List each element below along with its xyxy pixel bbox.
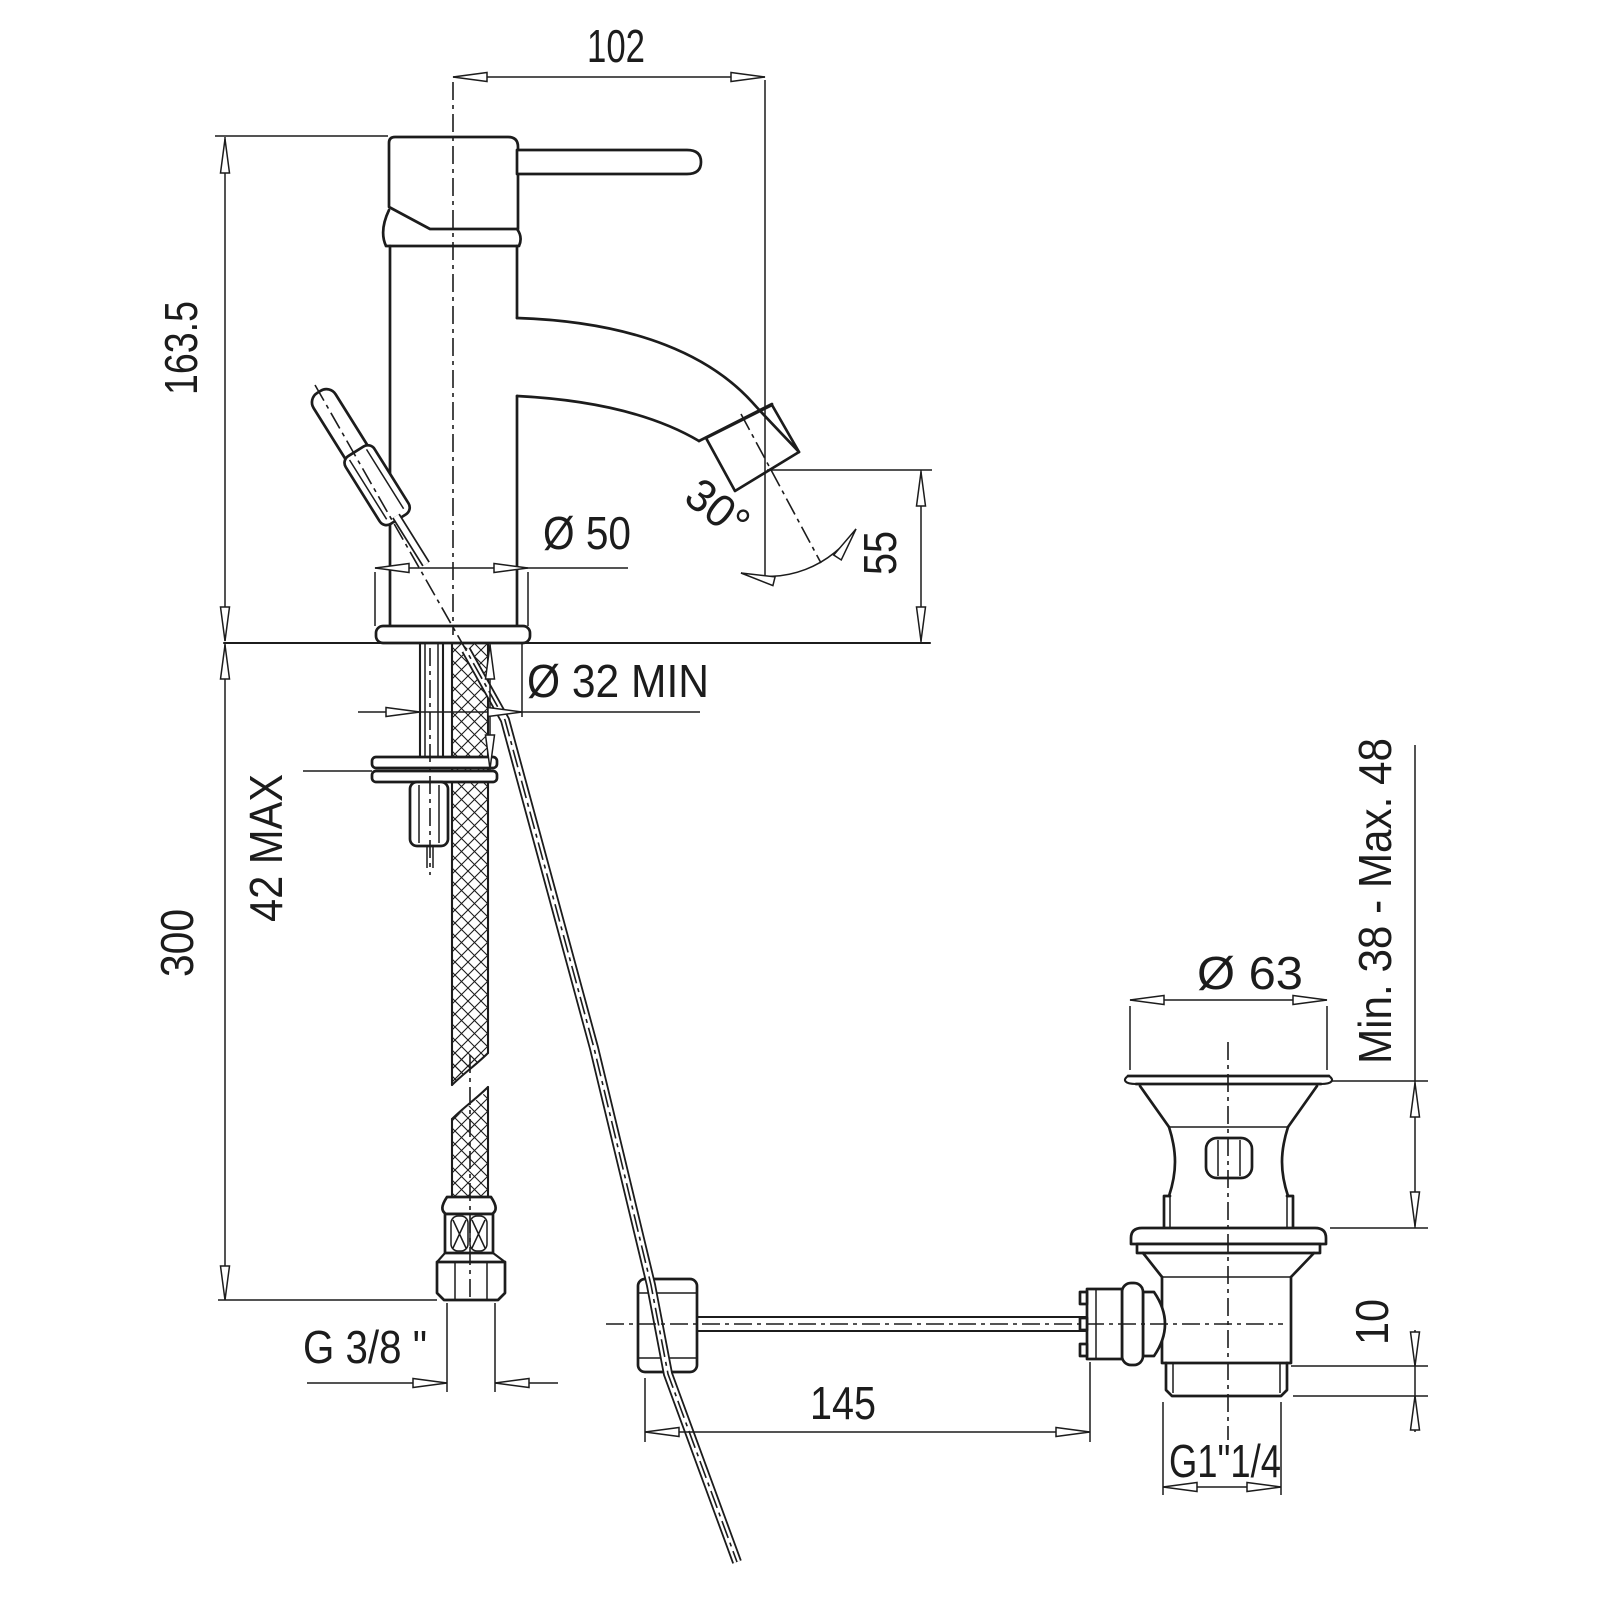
rod-stub-core xyxy=(396,516,426,564)
pop-up-linkage xyxy=(466,650,1087,1562)
dim-label-163-5: 163.5 xyxy=(155,301,207,395)
spout-inner-curve xyxy=(517,396,699,441)
pop-up-waste-drain xyxy=(1080,1076,1332,1396)
knurl-tab-3 xyxy=(1080,1344,1087,1356)
dim-hole-min: Ø 32 MIN xyxy=(358,655,709,717)
waste-body xyxy=(1162,1277,1291,1363)
basin-mixer xyxy=(376,137,799,643)
vertical-rod-core xyxy=(466,650,737,1562)
dim-total-height: 163.5 xyxy=(155,136,388,641)
dim-label-dia-63: Ø 63 xyxy=(1197,947,1303,999)
drawing-sheet: 102 163.5 300 42 MAX Ø 50 Ø 32 MIN xyxy=(0,0,1600,1600)
knurl-tab-2 xyxy=(1080,1318,1087,1330)
spout-outer-curve xyxy=(517,318,799,452)
dim-swivel-angle: 30° xyxy=(676,468,860,586)
knurl-tab-1 xyxy=(1080,1292,1087,1304)
clamp-washer-upper xyxy=(372,757,497,768)
hose-ferrule-flare xyxy=(442,1197,495,1214)
dim-supply-thread: G 3/8 " xyxy=(303,1303,558,1392)
dim-label-dia-50: Ø 50 xyxy=(543,507,631,559)
dim-label-30deg: 30° xyxy=(676,468,760,550)
vertical-rod-outline xyxy=(466,650,737,1562)
dim-label-55: 55 xyxy=(854,531,906,575)
cad-drawing: 102 163.5 300 42 MAX Ø 50 Ø 32 MIN xyxy=(0,0,1600,1600)
dim-label-102: 102 xyxy=(587,20,645,72)
dim-waste-thread: G1"1/4 xyxy=(1163,1402,1281,1495)
arrowhead xyxy=(453,73,487,82)
pop-up-ferrule xyxy=(341,442,412,528)
mounting-stud-inner xyxy=(425,643,438,757)
clamp-washer-lower xyxy=(372,771,497,782)
dim-label-dia-32-min: Ø 32 MIN xyxy=(527,655,709,707)
spout-axis-centerline xyxy=(741,414,821,563)
dim-label-300: 300 xyxy=(151,909,203,977)
mounting-stud-outer xyxy=(420,643,443,757)
dim-hose-drop: 300 xyxy=(151,643,437,1300)
arrowhead xyxy=(731,73,765,82)
threaded-tail xyxy=(1166,1363,1287,1396)
tail-thread-lines xyxy=(1173,1363,1280,1393)
handle-lever xyxy=(517,150,701,174)
dim-spout-height: 55 xyxy=(767,470,932,643)
dim-base-diameter: Ø 50 xyxy=(375,507,631,626)
hose-hex-nut xyxy=(437,1262,505,1300)
dim-basin-depth-range: Min. 38 - Max. 48 xyxy=(1330,738,1428,1228)
dim-collar-height: 10 xyxy=(1291,1299,1428,1432)
hose-braid-upper xyxy=(452,643,488,1083)
dim-label-min-max: Min. 38 - Max. 48 xyxy=(1349,738,1401,1064)
dim-linkage-reach: 145 xyxy=(645,1362,1090,1442)
dim-label-g38: G 3/8 " xyxy=(303,1321,427,1373)
stud-lock-nut xyxy=(410,782,448,846)
dim-label-42-max: 42 MAX xyxy=(240,774,292,922)
supply-hose xyxy=(437,643,505,1300)
dim-label-10: 10 xyxy=(1346,1299,1398,1345)
dim-label-g114: G1"1/4 xyxy=(1169,1435,1281,1487)
dim-label-145: 145 xyxy=(810,1377,876,1429)
crossbar-window xyxy=(1206,1138,1252,1178)
